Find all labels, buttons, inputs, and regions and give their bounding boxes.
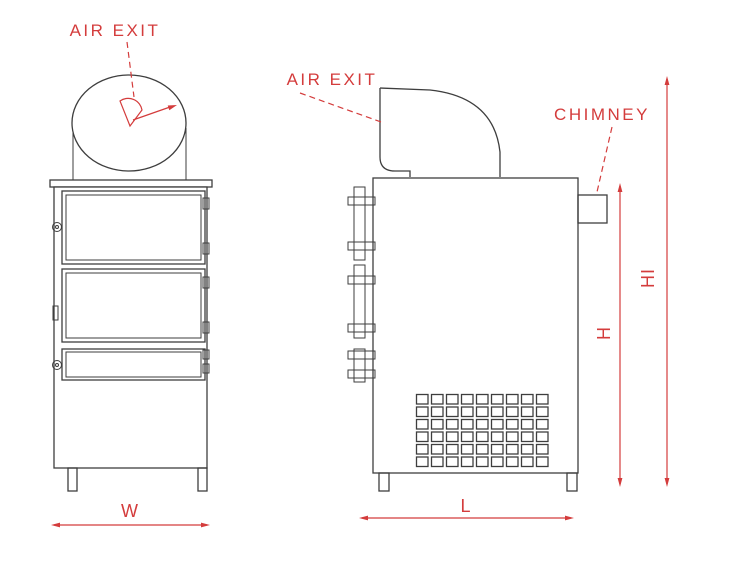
side-leg-right: [567, 473, 577, 491]
door-hinge: [348, 370, 375, 378]
cabinet-top-panel: [50, 180, 212, 187]
chimney-leader: [597, 127, 612, 192]
ventilation-grille: [415, 393, 550, 468]
air-exit-label-side: AIR EXIT: [287, 70, 378, 89]
chimney-stub: [578, 195, 607, 223]
cabinet-body-front: [54, 187, 207, 468]
door-edge-bottom: [348, 349, 375, 382]
front-leg-right: [198, 468, 207, 491]
door-edge-top: [348, 187, 375, 260]
door-hinge: [348, 351, 375, 359]
door-hinge: [348, 242, 375, 250]
air-exit-duct-outer: [380, 88, 500, 177]
front-leg-left: [68, 468, 77, 491]
total-height-dim-label: HI: [638, 268, 658, 288]
body-height-dim-label: H: [594, 326, 614, 340]
side-leg-left: [379, 473, 389, 491]
total-height-dimension: HI: [638, 76, 669, 487]
technical-drawing-canvas: AIR EXIT: [0, 0, 738, 574]
width-dim-label: W: [121, 501, 139, 521]
front-view: AIR EXIT: [50, 21, 212, 527]
air-exit-label-front: AIR EXIT: [70, 21, 161, 40]
cabinet-technical-drawing: AIR EXIT: [0, 0, 738, 574]
length-dim-label: L: [460, 496, 471, 516]
air-exit-leader-side: [300, 93, 381, 122]
door-hinge: [348, 276, 375, 284]
length-dimension: L: [359, 496, 574, 520]
body-height-dimension: H: [594, 183, 622, 487]
chimney-label: CHIMNEY: [554, 105, 650, 124]
side-view: AIR EXIT CHIMNEY L H HI: [287, 70, 670, 520]
door-hinge: [348, 197, 375, 205]
door-edge-middle: [348, 265, 375, 338]
width-dimension: W: [51, 501, 210, 527]
door-hinge: [348, 324, 375, 332]
air-exit-duct-inner: [380, 88, 410, 177]
